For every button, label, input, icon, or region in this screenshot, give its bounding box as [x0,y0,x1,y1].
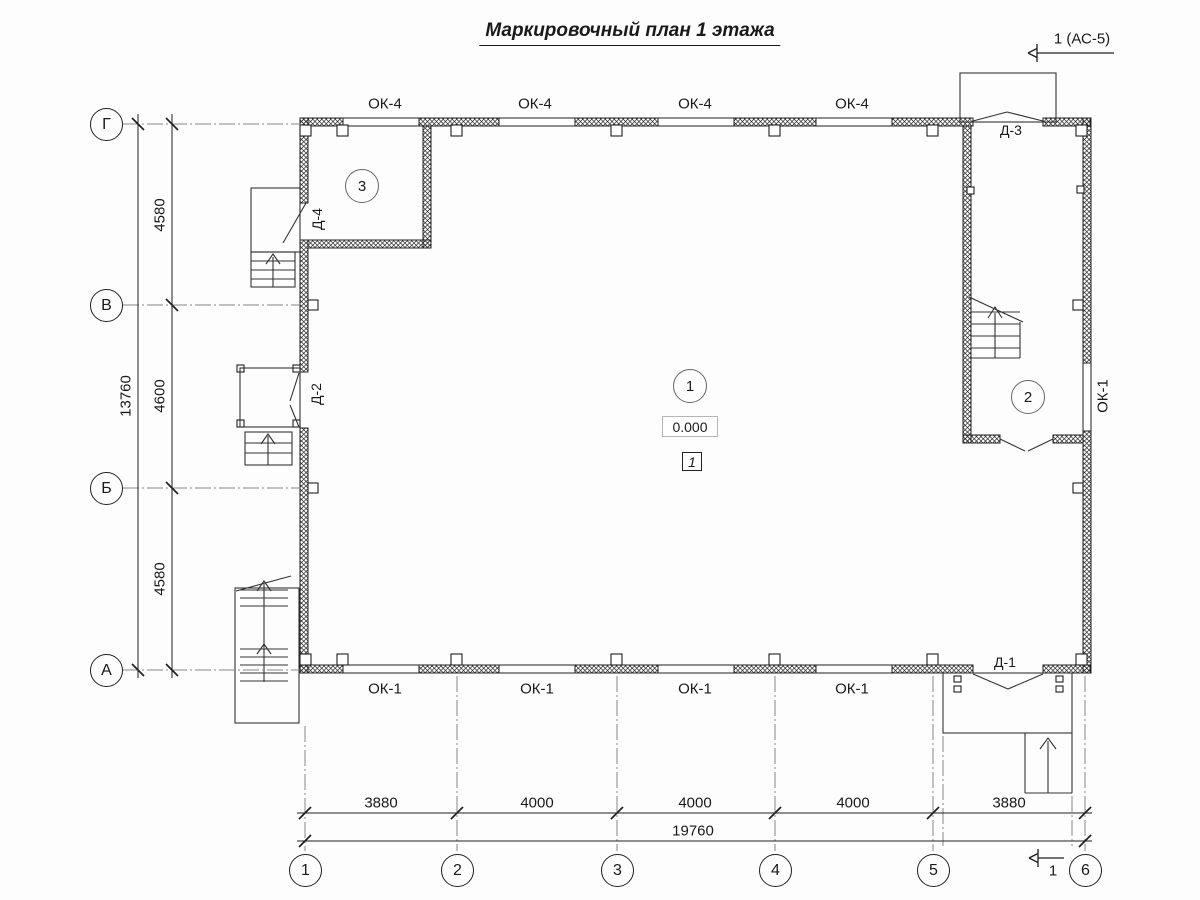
window-label-top-2: ОК-4 [518,97,552,112]
window-openings [343,118,1091,673]
axis-col-circle-3: 3 [601,854,634,887]
window-label-top-1: ОК-4 [368,97,402,112]
dim-left-total: 13760 [119,375,134,417]
axis-row-label-g: Г [102,116,111,134]
window-label-top-4: ОК-4 [835,97,869,112]
section-marker-top-arrow [1028,49,1037,58]
drawing-sheet: Маркировочный план 1 этажа 1 (АС-5) 1 Г … [0,0,1200,900]
section-label-top: 1 (АС-5) [1054,32,1110,47]
dim-bottom-segment-4: 4000 [836,796,869,811]
dim-bottom-segment-1: 3880 [364,796,397,811]
door-leaf-d1 [973,674,1043,689]
window-label-right: ОК-1 [1096,379,1111,413]
section-markers [1028,44,1114,867]
door-label-d1: Д-1 [994,655,1016,669]
axis-col-label-2: 2 [453,862,462,880]
drawing-title: Маркировочный план 1 этажа [479,20,780,46]
axis-row-circle-g: Г [90,108,123,141]
section-marker-bottom-arrow [1029,854,1038,863]
pilaster-marks [237,125,1087,692]
axis-col-label-1: 1 [301,862,310,880]
elevation-value: 0.000 [672,419,707,435]
door-label-d4: Д-4 [310,208,324,230]
dimension-ticks [132,118,1091,847]
door-label-d2: Д-2 [309,383,323,405]
dim-bottom-total: 19760 [672,824,714,839]
axis-row-label-v: В [101,297,112,315]
axis-col-circle-6: 6 [1069,854,1102,887]
door-label-d3: Д-3 [1000,123,1022,137]
door-swings [283,112,1053,689]
axis-col-circle-2: 2 [441,854,474,887]
axis-col-label-4: 4 [771,862,780,880]
axis-row-circle-b: Б [90,472,123,505]
dim-left-segment-2: 4600 [153,379,168,412]
stair-enclosure-sw [235,588,299,723]
axis-col-circle-4: 4 [759,854,792,887]
detail-marker-box: 1 [682,452,702,471]
porch-d4 [251,188,300,252]
porch-d1 [943,673,1072,733]
room-circle-2: 2 [1011,380,1045,414]
window-label-top-3: ОК-4 [678,97,712,112]
axis-col-label-3: 3 [613,862,622,880]
axis-row-circle-v: В [90,289,123,322]
dim-left-segment-3: 4580 [153,562,168,595]
room-label-1: 1 [686,378,694,395]
door-leaf-d3 [973,112,1043,121]
window-label-bottom-3: ОК-1 [678,682,712,697]
room-label-3: 3 [358,178,366,195]
door-leaf-d2 [290,373,299,427]
door-leaf-d4 [283,203,306,243]
axis-col-label-5: 5 [929,862,938,880]
dim-bottom-segment-2: 4000 [520,796,553,811]
axis-row-circle-a: А [90,654,123,687]
axis-col-label-6: 6 [1081,862,1090,880]
axis-col-circle-5: 5 [917,854,950,887]
dim-bottom-segment-3: 4000 [678,796,711,811]
detail-marker-value: 1 [688,454,696,470]
axis-row-label-b: Б [101,480,112,498]
section-label-bottom: 1 [1049,864,1057,879]
axis-col-circle-1: 1 [289,854,322,887]
dim-bottom-segment-5: 3880 [992,796,1025,811]
window-label-bottom-2: ОК-1 [520,682,554,697]
porch-d3 [960,73,1056,122]
dim-left-segment-1: 4580 [153,198,168,231]
window-label-bottom-4: ОК-1 [835,682,869,697]
elevation-mark: 0.000 [662,416,718,437]
dimension-lines [138,114,1092,841]
axis-lines [123,124,1085,851]
door-leaf-vestibule [1000,439,1053,451]
room-circle-3: 3 [345,169,379,203]
room-label-2: 2 [1024,389,1032,406]
window-label-bottom-1: ОК-1 [368,682,402,697]
room-circle-1: 1 [673,369,707,403]
axis-row-label-a: А [101,662,112,680]
